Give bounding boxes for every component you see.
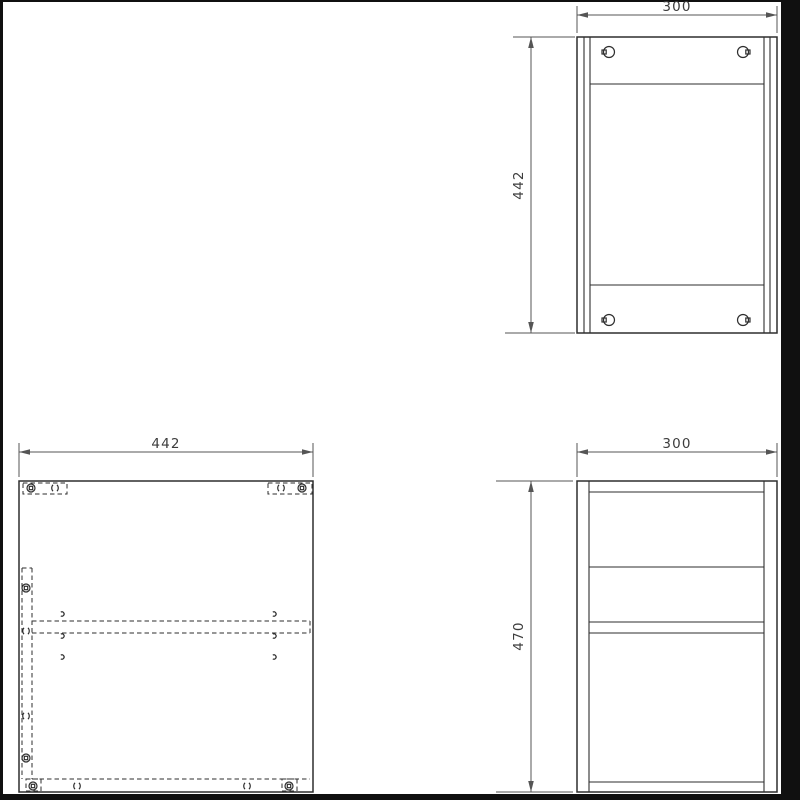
dimension-label: 442 [151,436,180,452]
dimension-label: 300 [662,436,691,452]
drawing-sheet: 300 442 442 [0,0,800,800]
dimension-label: 470 [511,621,527,650]
paper-background [3,2,781,794]
technical-drawing: 300 442 442 [0,0,800,800]
dimension-label: 442 [511,170,527,199]
dimension-label: 300 [662,0,691,15]
